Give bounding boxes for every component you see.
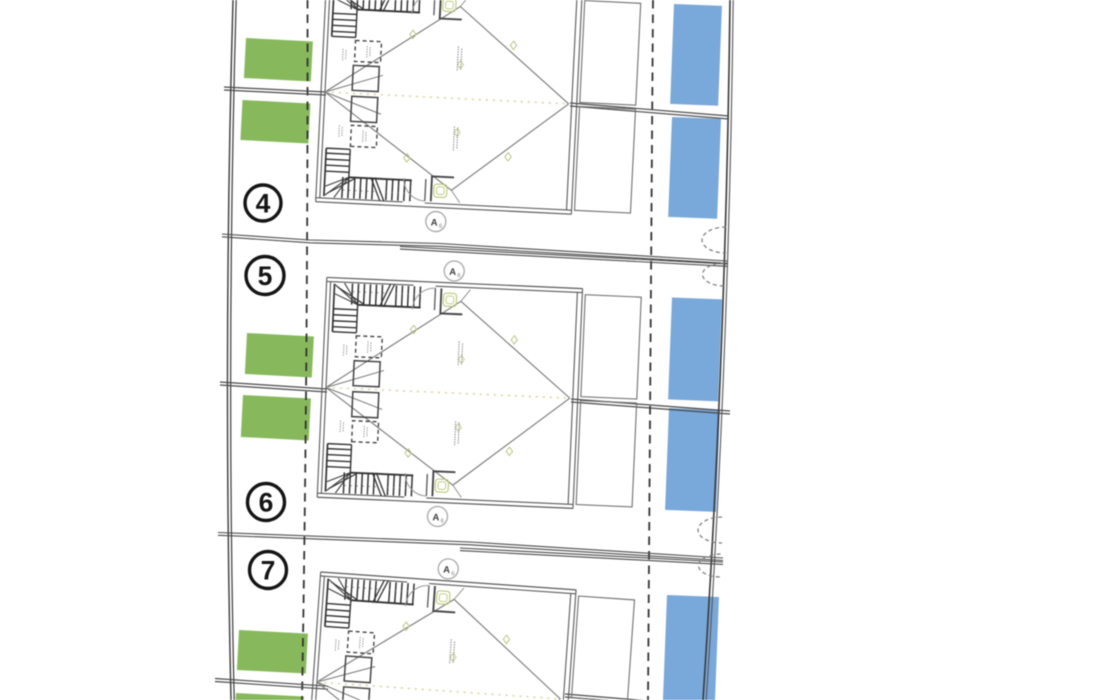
svg-text:7: 7 [261, 556, 276, 586]
svg-text:4: 4 [256, 189, 271, 219]
svg-text:5: 5 [258, 261, 273, 291]
svg-text:6: 6 [259, 488, 274, 518]
